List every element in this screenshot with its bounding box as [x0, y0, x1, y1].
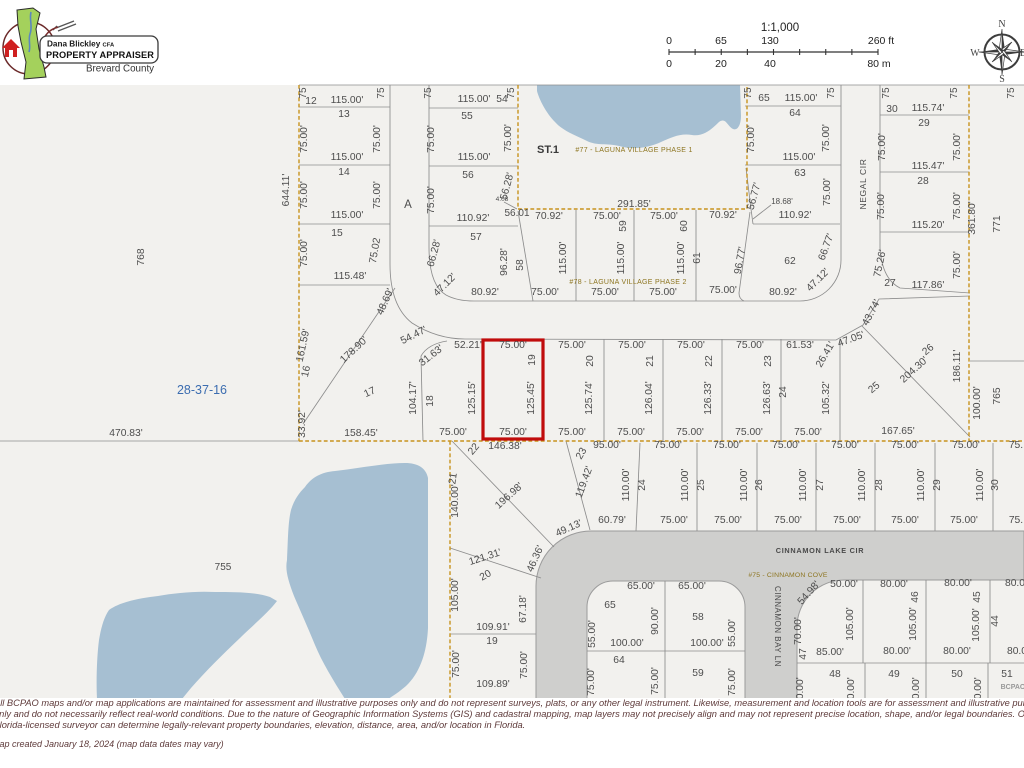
svg-text:75.: 75.	[1009, 440, 1023, 451]
svg-text:22: 22	[704, 355, 715, 367]
svg-text:NEGAL CIR: NEGAL CIR	[858, 159, 868, 210]
svg-text:115.00': 115.00'	[616, 242, 627, 275]
svg-text:51: 51	[1001, 669, 1013, 680]
svg-text:115.00': 115.00'	[783, 152, 816, 163]
svg-text:75.00': 75.00'	[952, 192, 963, 220]
svg-text:75.00': 75.00'	[709, 285, 737, 296]
svg-text:65.00': 65.00'	[627, 581, 655, 592]
svg-text:80.92': 80.92'	[471, 287, 499, 298]
svg-text:75.00': 75.00'	[660, 515, 688, 526]
svg-text:126.33': 126.33'	[703, 381, 714, 414]
svg-text:90.00': 90.00'	[650, 607, 661, 635]
svg-text:0: 0	[666, 35, 672, 47]
svg-text:75.00': 75.00'	[649, 287, 677, 298]
svg-text:75.00': 75.00'	[439, 427, 467, 438]
svg-text:75: 75	[423, 87, 434, 99]
svg-text:65: 65	[715, 35, 727, 47]
svg-text:75.00': 75.00'	[891, 440, 919, 451]
svg-text:75.00': 75.00'	[746, 125, 757, 153]
svg-text:110.00': 110.00'	[916, 469, 927, 502]
svg-text:62: 62	[784, 256, 796, 267]
svg-text:48: 48	[829, 669, 841, 680]
svg-text:85.00': 85.00'	[816, 647, 844, 658]
svg-text:13: 13	[338, 109, 350, 120]
svg-text:75.00': 75.00'	[822, 178, 833, 206]
svg-text:75.00': 75.00'	[558, 427, 586, 438]
svg-text:75.00': 75.00'	[952, 251, 963, 279]
svg-text:60: 60	[679, 220, 690, 232]
svg-text:18.68': 18.68'	[771, 197, 793, 206]
svg-text:CINNAMON LAKE CIR: CINNAMON LAKE CIR	[776, 546, 865, 555]
svg-text:47: 47	[798, 648, 809, 660]
svg-text:75.00': 75.00'	[499, 427, 527, 438]
svg-text:100.00': 100.00'	[690, 638, 723, 649]
svg-text:1:1,000: 1:1,000	[761, 22, 799, 34]
svg-text:105.00': 105.00'	[845, 607, 856, 640]
svg-text:80.92': 80.92'	[769, 287, 797, 298]
svg-text:75.00': 75.00'	[676, 427, 704, 438]
svg-text:20: 20	[585, 355, 596, 367]
svg-text:59: 59	[692, 668, 704, 679]
svg-text:75.00': 75.00'	[593, 211, 621, 222]
svg-text:75: 75	[1006, 87, 1017, 99]
svg-text:75.00': 75.00'	[677, 340, 705, 351]
svg-text:#77 - LAGUNA VILLAGE PHASE 1: #77 - LAGUNA VILLAGE PHASE 1	[575, 147, 692, 154]
svg-text:80.0: 80.0	[1005, 578, 1024, 589]
svg-text:80.00': 80.00'	[944, 578, 972, 589]
svg-text:105.32': 105.32'	[821, 381, 832, 414]
svg-text:#78 - LAGUNA VILLAGE PHASE 2: #78 - LAGUNA VILLAGE PHASE 2	[569, 279, 686, 286]
svg-text:30: 30	[886, 104, 898, 115]
svg-text:115.00': 115.00'	[331, 152, 364, 163]
svg-text:115.00': 115.00'	[558, 242, 569, 275]
svg-text:755: 755	[215, 562, 232, 573]
svg-text:0: 0	[666, 58, 672, 70]
svg-text:75.00': 75.00'	[952, 440, 980, 451]
svg-text:Brevard County: Brevard County	[86, 64, 154, 75]
svg-text:61: 61	[692, 252, 703, 264]
svg-text:30: 30	[990, 479, 1001, 491]
svg-text:115.00': 115.00'	[785, 93, 818, 104]
svg-text:110.00': 110.00'	[621, 469, 632, 502]
svg-text:67.18': 67.18'	[518, 595, 529, 623]
svg-text:115.00': 115.00'	[458, 94, 491, 105]
svg-text:186.11': 186.11'	[952, 350, 963, 383]
svg-text:4.08: 4.08	[496, 196, 509, 203]
svg-text:75.00': 75.00'	[426, 186, 437, 214]
svg-text:80.0: 80.0	[1007, 646, 1024, 657]
svg-text:75: 75	[881, 87, 892, 99]
svg-text:95.00': 95.00'	[593, 440, 621, 451]
svg-text:26: 26	[754, 479, 765, 491]
svg-text:158.45': 158.45'	[344, 428, 377, 439]
svg-text:CINNAMON BAY LN: CINNAMON BAY LN	[773, 586, 782, 667]
svg-text:Florida-licensed surveyor can: Florida-licensed surveyor can determine …	[0, 720, 525, 730]
svg-text:75.00': 75.00'	[950, 515, 978, 526]
svg-text:N: N	[998, 19, 1005, 30]
svg-text:80.00': 80.00'	[880, 579, 908, 590]
svg-text:28: 28	[917, 176, 929, 187]
svg-text:64: 64	[789, 108, 801, 119]
svg-text:24: 24	[637, 479, 648, 491]
svg-text:75.00': 75.00'	[952, 133, 963, 161]
svg-text:BCPAO: BCPAO	[1001, 684, 1024, 691]
svg-text:15: 15	[331, 228, 343, 239]
svg-text:115.20': 115.20'	[912, 220, 945, 231]
svg-text:117.86': 117.86'	[912, 280, 945, 291]
svg-text:96.28': 96.28'	[499, 248, 510, 276]
svg-text:57: 57	[470, 232, 482, 243]
svg-text:115.00': 115.00'	[331, 95, 364, 106]
svg-text:75: 75	[376, 87, 387, 99]
svg-text:75.00': 75.00'	[831, 440, 859, 451]
svg-text:109.89': 109.89'	[476, 679, 509, 690]
svg-text:S: S	[999, 74, 1005, 85]
svg-text:45: 45	[972, 591, 983, 603]
svg-text:27: 27	[815, 479, 826, 491]
svg-text:115.00': 115.00'	[676, 242, 687, 275]
svg-text:291.85': 291.85'	[617, 199, 650, 210]
svg-text:75.00': 75.00'	[299, 125, 310, 153]
svg-text:21: 21	[645, 355, 656, 367]
svg-text:W: W	[970, 48, 980, 59]
svg-text:75.00': 75.00'	[727, 668, 738, 696]
svg-text:58: 58	[515, 259, 526, 271]
svg-text:105.00': 105.00'	[971, 608, 982, 641]
svg-text:70.92': 70.92'	[709, 210, 737, 221]
svg-text:49: 49	[888, 669, 900, 680]
svg-text:27: 27	[884, 278, 896, 289]
svg-text:60.79': 60.79'	[598, 515, 626, 526]
svg-text:50.00': 50.00'	[830, 579, 858, 590]
svg-text:75.00': 75.00'	[591, 287, 619, 298]
svg-text:104.17': 104.17'	[408, 381, 419, 414]
svg-text:644.11': 644.11'	[281, 174, 292, 207]
svg-text:65: 65	[758, 93, 770, 104]
svg-text:75.00': 75.00'	[372, 125, 383, 153]
svg-text:110.00': 110.00'	[975, 469, 986, 502]
svg-text:75.00': 75.00'	[531, 287, 559, 298]
svg-text:12: 12	[305, 96, 317, 107]
svg-text:75.00': 75.00'	[772, 440, 800, 451]
svg-text:470.83': 470.83'	[109, 428, 142, 439]
svg-text:29: 29	[918, 118, 930, 129]
svg-text:61.53': 61.53'	[786, 340, 814, 351]
svg-text:75.00': 75.00'	[372, 181, 383, 209]
svg-text:115.48': 115.48'	[334, 271, 367, 282]
svg-text:29: 29	[932, 479, 943, 491]
svg-text:58: 58	[692, 612, 704, 623]
svg-text:140.00': 140.00'	[450, 484, 461, 517]
svg-text:#75 - CINNAMON COVE: #75 - CINNAMON COVE	[748, 572, 828, 579]
svg-text:44: 44	[990, 615, 1001, 627]
svg-text:75.00': 75.00'	[503, 124, 514, 152]
svg-text:125.15': 125.15'	[467, 381, 478, 414]
svg-text:110.00': 110.00'	[739, 469, 750, 502]
svg-text:130: 130	[761, 35, 779, 47]
svg-text:75.00': 75.00'	[650, 667, 661, 695]
svg-text:75.: 75.	[1009, 515, 1023, 526]
svg-text:24: 24	[778, 386, 789, 398]
svg-text:40: 40	[764, 58, 776, 70]
svg-text:63: 63	[794, 168, 806, 179]
svg-text:65.00': 65.00'	[678, 581, 706, 592]
svg-text:110.00': 110.00'	[680, 469, 691, 502]
svg-text:55: 55	[461, 111, 473, 122]
svg-text:100.00': 100.00'	[972, 386, 983, 419]
svg-text:109.91': 109.91'	[476, 622, 509, 633]
svg-text:115.47': 115.47'	[912, 161, 945, 172]
svg-text:14: 14	[338, 167, 350, 178]
svg-text:ST.1: ST.1	[537, 144, 559, 156]
svg-text:56: 56	[462, 170, 474, 181]
svg-text:115.74': 115.74'	[912, 103, 945, 114]
svg-text:75.00': 75.00'	[735, 427, 763, 438]
svg-text:75.00': 75.00'	[426, 125, 437, 153]
svg-text:59: 59	[618, 220, 629, 232]
svg-text:115.00': 115.00'	[458, 152, 491, 163]
svg-text:20: 20	[715, 58, 727, 70]
svg-text:75.00': 75.00'	[877, 133, 888, 161]
svg-text:19: 19	[527, 354, 538, 366]
svg-text:80.00': 80.00'	[943, 646, 971, 657]
svg-text:768: 768	[136, 248, 147, 265]
svg-text:75.00': 75.00'	[650, 211, 678, 222]
svg-text:100.00': 100.00'	[610, 638, 643, 649]
svg-text:110.00': 110.00'	[857, 469, 868, 502]
svg-text:75.00': 75.00'	[499, 340, 527, 351]
svg-text:75.00': 75.00'	[586, 668, 597, 696]
svg-text:75.00': 75.00'	[299, 181, 310, 209]
svg-text:765: 765	[992, 387, 1003, 404]
svg-text:A: A	[404, 199, 412, 211]
svg-text:only and do not necessarily re: only and do not necessarily reflect real…	[0, 709, 1024, 719]
svg-text:110.00': 110.00'	[798, 469, 809, 502]
svg-text:75: 75	[949, 87, 960, 99]
svg-text:33.92': 33.92'	[297, 410, 308, 438]
svg-text:56.01: 56.01	[504, 208, 529, 219]
svg-text:125.45': 125.45'	[526, 381, 537, 414]
svg-text:64: 64	[613, 655, 625, 666]
svg-text:65: 65	[604, 600, 616, 611]
svg-text:110.92': 110.92'	[457, 213, 490, 224]
svg-text:75.00': 75.00'	[714, 515, 742, 526]
svg-text:55.00': 55.00'	[587, 620, 598, 648]
svg-text:70.00': 70.00'	[793, 617, 804, 645]
svg-text:E: E	[1020, 48, 1024, 59]
svg-text:75.00': 75.00'	[299, 239, 310, 267]
svg-text:75.00': 75.00'	[821, 124, 832, 152]
svg-text:75.00': 75.00'	[876, 192, 887, 220]
svg-text:80 m: 80 m	[867, 58, 891, 70]
svg-text:75.00': 75.00'	[891, 515, 919, 526]
svg-text:105.00': 105.00'	[908, 607, 919, 640]
svg-text:361.80': 361.80'	[967, 201, 978, 234]
svg-text:146.38': 146.38'	[488, 441, 521, 452]
svg-text:260 ft: 260 ft	[868, 35, 894, 47]
svg-text:75.00': 75.00'	[654, 440, 682, 451]
svg-text:All BCPAO maps and/or map appl: All BCPAO maps and/or map applications a…	[0, 698, 1024, 708]
svg-text:75.00': 75.00'	[617, 427, 645, 438]
svg-text:75: 75	[743, 87, 754, 99]
svg-text:75.00': 75.00'	[618, 340, 646, 351]
svg-text:167.65': 167.65'	[881, 426, 914, 437]
svg-text:18: 18	[425, 395, 436, 407]
svg-text:75.00': 75.00'	[451, 650, 462, 678]
svg-text:75.00': 75.00'	[558, 340, 586, 351]
svg-text:80.00': 80.00'	[883, 646, 911, 657]
svg-text:75.00': 75.00'	[774, 515, 802, 526]
svg-text:70.92': 70.92'	[535, 211, 563, 222]
svg-text:126.63': 126.63'	[762, 381, 773, 414]
svg-text:75.00': 75.00'	[833, 515, 861, 526]
svg-text:126.04': 126.04'	[644, 381, 655, 414]
svg-text:110.92': 110.92'	[779, 210, 812, 221]
svg-text:105.00': 105.00'	[450, 578, 461, 611]
svg-text:28-37-16: 28-37-16	[177, 383, 227, 397]
svg-text:PROPERTY APPRAISER: PROPERTY APPRAISER	[46, 50, 154, 60]
svg-text:55.00': 55.00'	[727, 619, 738, 647]
svg-text:25: 25	[696, 479, 707, 491]
svg-text:46: 46	[910, 591, 921, 603]
svg-text:125.74': 125.74'	[584, 381, 595, 414]
svg-text:75.00': 75.00'	[713, 440, 741, 451]
svg-text:75: 75	[826, 87, 837, 99]
svg-text:75.00': 75.00'	[736, 340, 764, 351]
svg-text:52.21': 52.21'	[454, 340, 482, 351]
svg-text:75.00': 75.00'	[794, 427, 822, 438]
svg-text:21: 21	[447, 472, 460, 485]
svg-text:23: 23	[763, 355, 774, 367]
svg-text:771: 771	[992, 215, 1003, 232]
svg-text:54: 54	[496, 94, 508, 105]
svg-text:75.00': 75.00'	[519, 651, 530, 679]
svg-text:50: 50	[951, 669, 963, 680]
svg-text:19: 19	[486, 636, 498, 647]
svg-text:115.00': 115.00'	[331, 210, 364, 221]
svg-text:Map created January 18, 2024 (: Map created January 18, 2024 (map data d…	[0, 739, 224, 749]
svg-text:28: 28	[874, 479, 885, 491]
